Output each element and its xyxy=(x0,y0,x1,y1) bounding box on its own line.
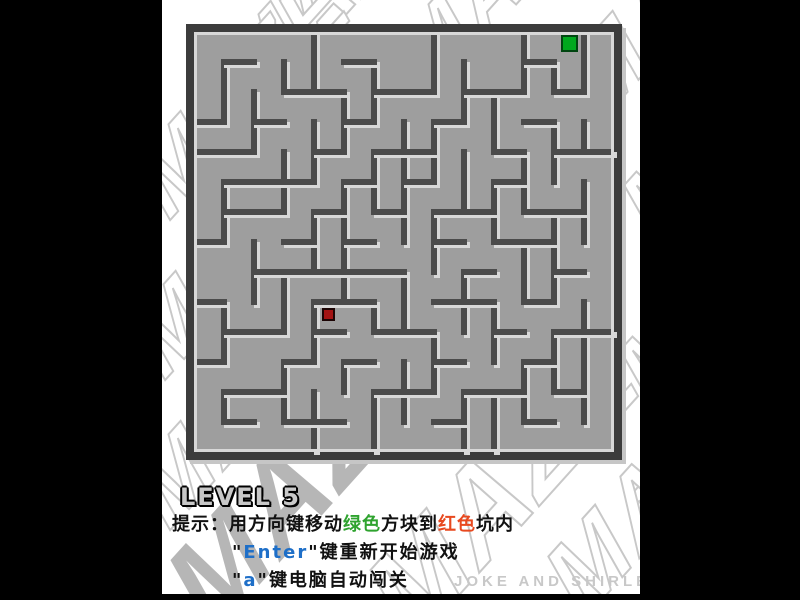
maze-wall xyxy=(521,239,527,305)
maze-wall xyxy=(371,209,407,215)
maze-wall xyxy=(461,149,467,215)
maze-wall xyxy=(401,269,407,335)
maze-wall xyxy=(491,89,497,155)
maze-wall xyxy=(341,239,377,245)
maze-wall xyxy=(221,209,287,215)
maze-wall xyxy=(311,209,347,215)
maze-wall xyxy=(401,179,437,185)
maze-wall xyxy=(371,389,437,395)
game-panel: MAZEMAZEMAZEMAZEMAZEMAZEMAZEMAZEMAZEMAZE… xyxy=(162,0,640,594)
hint-text-segment: 绿色 xyxy=(343,514,381,535)
maze-wall xyxy=(491,389,497,452)
hint-text-segment: 方块到 xyxy=(381,514,438,535)
maze-wall xyxy=(431,419,467,425)
maze-wall xyxy=(194,149,257,155)
maze-wall xyxy=(371,89,437,95)
maze-wall xyxy=(221,179,317,185)
maze-wall xyxy=(341,179,377,185)
maze-board[interactable] xyxy=(186,24,622,460)
maze-wall xyxy=(521,299,557,305)
maze-wall xyxy=(431,299,497,305)
maze-wall xyxy=(194,299,227,305)
game-window: { "palette": { "canvas_bg": "#000000", "… xyxy=(0,0,800,600)
maze-wall xyxy=(551,89,587,95)
maze-wall xyxy=(281,359,317,365)
maze-wall xyxy=(371,389,377,452)
maze-wall xyxy=(431,239,467,245)
maze-wall xyxy=(371,149,437,155)
maze-wall xyxy=(551,149,614,155)
maze-wall xyxy=(221,59,257,65)
maze-wall xyxy=(551,269,587,275)
maze-wall xyxy=(521,119,557,125)
hint-text-segment: 键重新开始游戏 xyxy=(320,542,460,563)
maze-wall xyxy=(431,119,467,125)
maze-wall xyxy=(194,359,227,365)
hint-line-auto: "a"键电脑自动闯关 xyxy=(232,566,409,592)
hint-text-segment: 键电脑自动闯关 xyxy=(269,570,409,591)
maze-wall xyxy=(311,32,317,95)
maze-wall xyxy=(221,419,257,425)
level-label: LEVEL 5 xyxy=(180,483,301,511)
maze-wall xyxy=(551,389,587,395)
hint-line-enter: "Enter"键重新开始游戏 xyxy=(232,538,460,564)
maze-wall xyxy=(491,329,527,335)
maze-wall xyxy=(281,419,347,425)
hint-text-segment: " xyxy=(258,570,269,591)
maze-wall xyxy=(311,299,377,305)
hint-text-segment: Enter xyxy=(243,542,308,563)
maze-wall xyxy=(281,89,347,95)
maze-wall xyxy=(251,119,287,125)
maze-wall xyxy=(311,149,347,155)
hint-text-segment: a xyxy=(243,570,257,591)
maze-wall xyxy=(521,209,587,215)
maze-wall xyxy=(491,179,527,185)
hint-text-segment: 提示：用方向键移动 xyxy=(172,514,343,535)
maze-wall xyxy=(281,239,317,245)
maze-wall xyxy=(461,269,497,275)
maze-wall xyxy=(311,329,347,335)
maze-wall xyxy=(341,119,377,125)
maze-wall xyxy=(521,419,557,425)
maze-wall xyxy=(194,119,227,125)
maze-wall xyxy=(521,359,557,365)
maze-wall xyxy=(221,59,227,125)
maze-wall xyxy=(431,359,467,365)
maze-wall xyxy=(251,269,407,275)
hint-text-segment: " xyxy=(232,570,243,591)
maze-wall xyxy=(491,149,527,155)
maze-wall xyxy=(221,389,287,395)
maze-wall xyxy=(521,59,557,65)
maze-wall xyxy=(461,89,527,95)
hint-text-segment: " xyxy=(308,542,319,563)
hint-text-segment: 红色 xyxy=(438,514,476,535)
maze-wall xyxy=(221,329,287,335)
maze-wall xyxy=(461,389,527,395)
target-square xyxy=(322,308,335,321)
maze-wall xyxy=(581,32,587,95)
maze-wall xyxy=(194,239,227,245)
player-square[interactable] xyxy=(561,35,578,52)
maze-wall xyxy=(491,239,557,245)
hint-text-segment: " xyxy=(232,542,243,563)
maze-wall xyxy=(341,59,377,65)
maze-wall xyxy=(551,329,614,335)
maze-wall xyxy=(281,269,287,335)
maze-wall xyxy=(341,359,377,365)
hint-line-move: 提示：用方向键移动绿色方块到红色坑内 xyxy=(172,510,514,536)
maze-wall xyxy=(431,32,437,95)
credit-text: JOKE AND SHIRLEY xyxy=(454,573,640,590)
hint-text-segment: 坑内 xyxy=(476,514,514,535)
maze-wall xyxy=(431,209,497,215)
maze-wall xyxy=(371,329,437,335)
